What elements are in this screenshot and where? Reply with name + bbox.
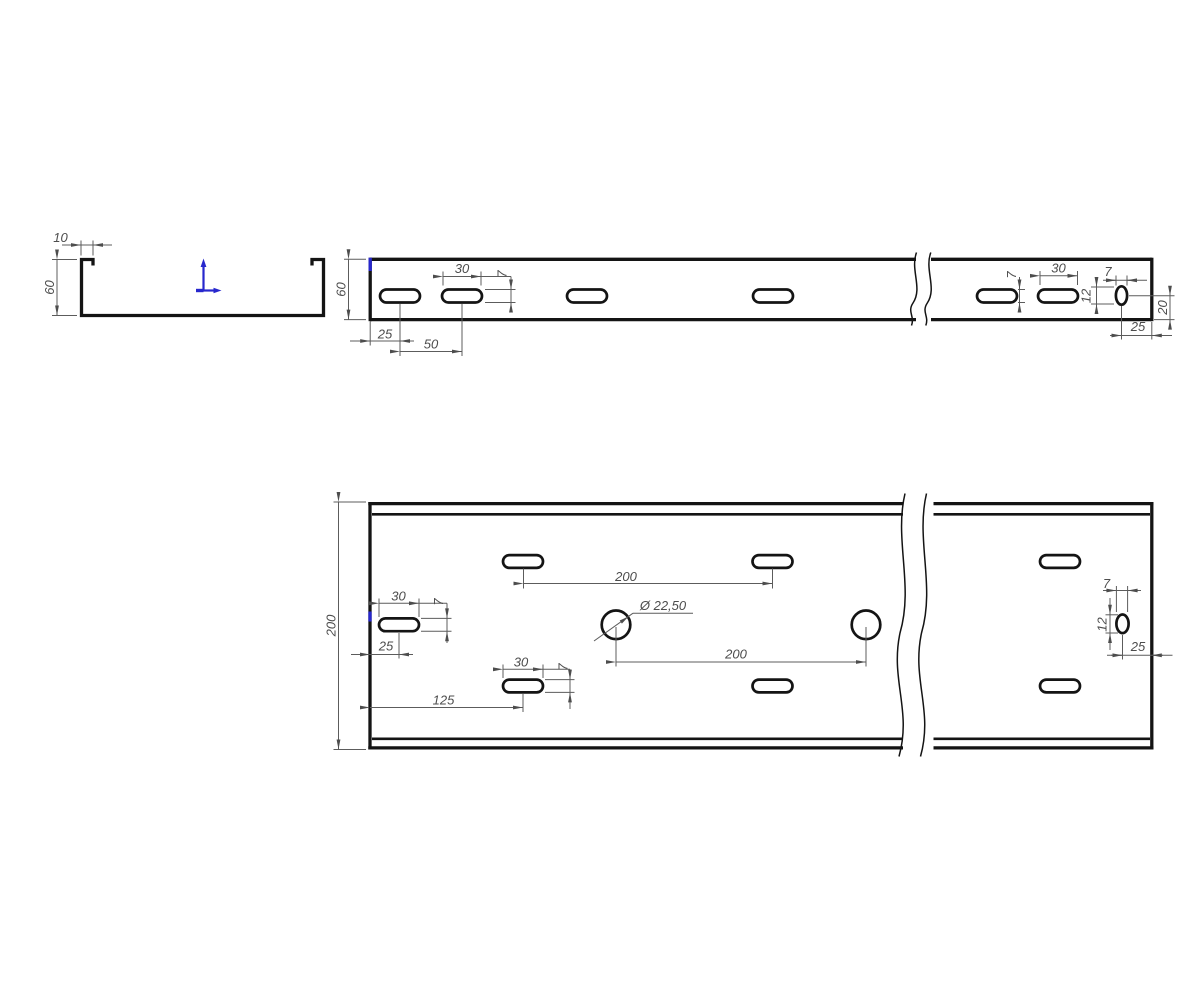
side-view: 60 30 7 25 bbox=[334, 253, 1175, 357]
dim-side-slot-pitch: 50 bbox=[400, 304, 462, 356]
plan-view: 200 200 30 7 bbox=[324, 494, 1173, 757]
dim-label-side-right-slot-length: 30 bbox=[1051, 261, 1066, 276]
axes-icon bbox=[196, 259, 222, 294]
dim-label-side-slot-pitch: 50 bbox=[424, 337, 439, 352]
dim-label-plan-mid-slot-length: 30 bbox=[514, 655, 529, 670]
plan-outline bbox=[368, 502, 1153, 750]
slot bbox=[442, 290, 482, 303]
dim-label-side-slot-width: 7 bbox=[495, 270, 510, 278]
dim-side-right-slot-length: 30 bbox=[1040, 261, 1078, 286]
dim-label-side-end-to-bottom: 20 bbox=[1155, 300, 1170, 316]
dim-plan-top-slot-pitch: 200 bbox=[524, 569, 773, 589]
dim-side-slot-width: 7 bbox=[485, 270, 516, 312]
cad-drawing-canvas: 10 60 bbox=[0, 0, 1200, 1000]
dim-side-end-slot-width: 7 bbox=[1103, 264, 1147, 286]
dim-section-lip: 10 bbox=[53, 230, 112, 256]
slot bbox=[503, 680, 543, 693]
dim-label-plan-end-slot-height: 12 bbox=[1095, 617, 1110, 632]
dim-plan-left-slot-offset: 25 bbox=[351, 633, 413, 659]
slot bbox=[1038, 290, 1078, 303]
plan-holes bbox=[379, 555, 1129, 692]
small-slot bbox=[1116, 615, 1128, 634]
dim-side-edge-offset: 25 bbox=[350, 304, 414, 356]
slot bbox=[503, 555, 543, 568]
slot bbox=[380, 290, 420, 303]
dim-label-section-lip: 10 bbox=[53, 230, 68, 245]
dim-plan-hole-pitch: 200 bbox=[616, 627, 866, 667]
section-view: 10 60 bbox=[42, 230, 324, 316]
dim-plan-left-slot-width: 7 bbox=[421, 598, 452, 643]
slot bbox=[379, 618, 419, 631]
dim-label-plan-left-slot-length: 30 bbox=[391, 589, 406, 604]
slot bbox=[567, 290, 607, 303]
dim-label-side-slot-length: 30 bbox=[455, 261, 470, 276]
dim-label-plan-end-slot-width: 7 bbox=[1103, 576, 1111, 591]
dim-label-plan-left-slot-width: 7 bbox=[431, 598, 446, 606]
dim-label-plan-end-slot-offset: 25 bbox=[1130, 639, 1146, 654]
dim-label-side-height: 60 bbox=[334, 282, 349, 297]
plan-break-lines bbox=[897, 494, 926, 757]
dim-label-plan-top-slot-pitch: 200 bbox=[614, 569, 637, 584]
dim-label-plan-left-slot-offset: 25 bbox=[378, 639, 394, 654]
dim-label-side-end-offset: 25 bbox=[1130, 319, 1146, 334]
dim-section-height: 60 bbox=[42, 260, 77, 316]
dim-plan-end-slot-height: 12 bbox=[1095, 598, 1119, 650]
slot bbox=[753, 680, 793, 693]
slot bbox=[753, 555, 793, 568]
slot bbox=[753, 290, 793, 303]
slot bbox=[1040, 680, 1080, 693]
dim-plan-end-slot-width: 7 bbox=[1103, 576, 1141, 612]
dim-label-plan-hole-diameter: Ø 22,50 bbox=[639, 598, 687, 613]
drawing-page: 10 60 bbox=[0, 0, 1200, 1000]
dim-side-height: 60 bbox=[334, 259, 367, 319]
dim-plan-mid-slot-from-edge: 125 bbox=[370, 693, 523, 713]
dim-label-side-end-slot-height: 12 bbox=[1079, 288, 1094, 303]
slot bbox=[1040, 555, 1080, 568]
dim-plan-end-slot-offset: 25 bbox=[1107, 635, 1173, 660]
dim-label-side-edge-offset: 25 bbox=[377, 327, 393, 342]
dim-label-side-right-slot-width: 7 bbox=[1004, 271, 1019, 279]
dim-label-side-end-slot-width: 7 bbox=[1104, 264, 1112, 279]
dim-label-plan-hole-pitch: 200 bbox=[724, 647, 747, 662]
dim-label-plan-width: 200 bbox=[324, 614, 339, 637]
side-break-lines bbox=[911, 253, 932, 326]
dim-label-plan-mid-slot-from-edge: 125 bbox=[433, 693, 455, 708]
dim-side-end-slot-height: 12 bbox=[1079, 279, 1115, 313]
small-slot bbox=[1116, 286, 1127, 304]
slot bbox=[977, 290, 1017, 303]
dim-plan-width: 200 bbox=[324, 502, 367, 750]
dim-label-plan-mid-slot-width: 7 bbox=[556, 663, 571, 671]
dim-label-section-height: 60 bbox=[42, 280, 57, 295]
